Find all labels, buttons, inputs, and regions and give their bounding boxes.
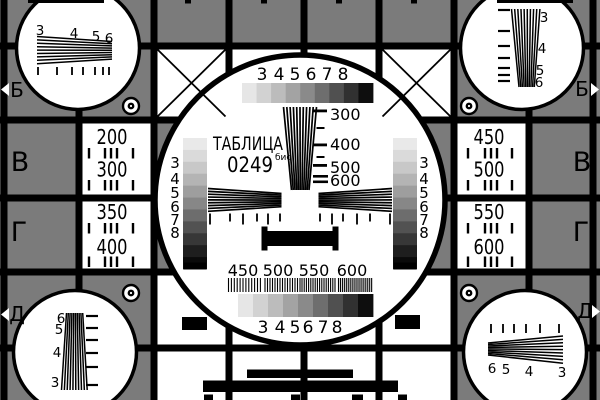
freq-350: 350 xyxy=(97,200,128,224)
tl-circle-ticks-tick xyxy=(56,67,58,75)
tr-circle-ticks-tick xyxy=(498,45,510,47)
bottom-bar-short xyxy=(247,370,353,379)
bl-circle-ticks-tick xyxy=(86,352,98,354)
right-grayscale-strip-step xyxy=(393,150,417,162)
tl-circle-ticks-tick xyxy=(71,67,73,75)
right_numbers-digits-digit: 8 xyxy=(419,224,429,242)
bottom_left-digits-digit: 4 xyxy=(53,345,62,361)
wedge-dash-minor-1 xyxy=(317,127,325,129)
bl-circle-ticks-tick xyxy=(86,327,98,329)
right-panel-ticks-550-tick xyxy=(490,223,492,234)
left-panel-ticks-350-tick xyxy=(110,223,112,234)
wedge-dash-minor-2 xyxy=(317,156,325,158)
wedge-label-400: 400 xyxy=(330,135,361,154)
top_left-digits-digit: 5 xyxy=(92,29,101,45)
right-grayscale-strip-step xyxy=(393,174,417,186)
row-letter-right-b: Б xyxy=(575,77,589,101)
bottom_right-digits-digit: 6 xyxy=(488,361,497,377)
bottom-cut-glyph-1 xyxy=(204,395,213,400)
br-circle-ticks-tick xyxy=(525,324,527,333)
top_numbers-digits-digit: 3 xyxy=(257,65,268,85)
br-circle-ticks-tick xyxy=(490,324,492,333)
right-grayscale-strip-step xyxy=(393,138,417,150)
row-letter-right-d: Д xyxy=(577,299,593,323)
bl-circle-ticks-tick xyxy=(86,384,98,386)
bottom_right-digits-digit: 3 xyxy=(558,365,567,381)
right-grayscale-strip-step xyxy=(393,221,417,233)
left-panel-ticks-300-tick xyxy=(110,180,112,191)
right-panel-ticks-500-tick xyxy=(467,180,469,191)
left-panel-ticks-400-tick xyxy=(88,257,90,268)
ibeam-bar xyxy=(265,231,335,246)
top_left-digits-digit: 4 xyxy=(70,26,79,42)
left-panel-ticks-200-tick xyxy=(88,148,90,159)
left_numbers-digits-digit: 8 xyxy=(170,224,180,242)
ref-mark-upper-right xyxy=(394,263,416,270)
br-circle-ticks-tick xyxy=(558,324,560,333)
bottom-grayscale-strip xyxy=(238,294,373,317)
top-grayscale-strip-step xyxy=(358,83,373,103)
freq-450: 450 xyxy=(474,125,505,149)
center-left-wedge-fan-line xyxy=(208,202,282,203)
left-panel-ticks-350-tick xyxy=(132,223,134,234)
center-ticks-left-tick xyxy=(209,214,211,225)
right-panel-ticks-500-tick xyxy=(496,180,498,191)
center-ticks-right-tick xyxy=(319,214,321,222)
left-grayscale-strip-step xyxy=(183,245,207,257)
tl-circle-ticks-tick xyxy=(102,67,104,75)
ref-mark-upper-left xyxy=(184,263,206,270)
left-panel-ticks-300-tick xyxy=(116,180,118,191)
ibeam-cap-right xyxy=(333,227,339,251)
top-edge-bar-right xyxy=(497,0,573,3)
wedge-dash-400 xyxy=(313,144,327,147)
tl-circle-ticks-tick xyxy=(82,67,84,75)
left-grayscale-strip xyxy=(183,138,207,269)
freq-600: 600 xyxy=(474,235,505,259)
left-grayscale-strip-step xyxy=(183,162,207,174)
bottom-cut-glyph-2 xyxy=(291,395,300,400)
top-cut-glyph-1 xyxy=(185,0,191,4)
left-grayscale-strip-step xyxy=(183,174,207,186)
center-ticks-right-tick xyxy=(389,214,391,225)
tr-circle-ticks-tick xyxy=(498,80,510,82)
right-panel-ticks-600-tick xyxy=(467,257,469,268)
right-panel-ticks-450-tick xyxy=(467,148,469,159)
top_numbers-digits-digit: 7 xyxy=(322,65,333,85)
bl-circle-ticks-tick xyxy=(86,339,98,341)
top-grayscale-strip-step xyxy=(344,83,359,103)
tr-circle-ticks-tick xyxy=(498,57,510,59)
top_numbers-digits-digit: 4 xyxy=(274,65,285,85)
right-panel-ticks-550-tick xyxy=(496,223,498,234)
bottom_numbers-digits-digit: 6 xyxy=(303,318,314,338)
tl-circle-ticks-tick xyxy=(108,67,110,75)
top_numbers-digits-digit: 8 xyxy=(338,65,349,85)
bottom_numbers-digits-digit: 3 xyxy=(258,318,269,338)
bottom_left-digits-digit: 3 xyxy=(51,375,60,391)
right-grayscale-strip-step xyxy=(393,198,417,210)
top_left-digits-digit: 3 xyxy=(36,23,45,39)
bottom_numbers-digits-digit: 4 xyxy=(275,318,286,338)
left-panel-ticks-350-tick xyxy=(116,223,118,234)
left-grayscale-strip-step xyxy=(183,233,207,245)
right-grayscale-strip-step xyxy=(393,209,417,221)
left-panel-ticks-350-tick xyxy=(88,223,90,234)
tl-circle-ticks-tick xyxy=(37,67,39,75)
tr-circle-ticks-tick xyxy=(498,67,510,69)
tr-circle-ticks-tick xyxy=(498,74,510,76)
center-ticks-right-tick xyxy=(342,214,344,222)
bl-circle-ticks-tick xyxy=(86,315,98,317)
top-grayscale-strip-step xyxy=(315,83,330,103)
left-panel-ticks-350-tick xyxy=(104,223,106,234)
row-letter-left-d: Д xyxy=(9,302,25,326)
card-code-suffix: бис xyxy=(275,153,291,163)
left-panel-ticks-300-tick xyxy=(104,180,106,191)
wedge-dash-300 xyxy=(313,110,327,113)
bottom-right-circle xyxy=(464,291,587,400)
bottom_numbers-digits-digit: 7 xyxy=(318,318,329,338)
bottom-grayscale-strip-step xyxy=(283,294,298,317)
row-letter-left-v: В xyxy=(11,147,30,178)
wedge-dash-600b xyxy=(313,181,328,184)
bottom_right-digits-digit: 5 xyxy=(502,362,511,378)
top_right-digits-digit: 4 xyxy=(538,41,547,57)
grating-group-2 xyxy=(265,278,300,292)
bottom_right-digits-digit: 4 xyxy=(525,364,534,380)
left-grayscale-strip-step xyxy=(183,198,207,210)
tl-circle-ticks-tick xyxy=(94,67,96,75)
top-edge-bar-left xyxy=(28,0,104,3)
row-letter-right-v: В xyxy=(573,147,592,178)
top-grayscale-strip-step xyxy=(242,83,257,103)
top-cut-glyph-4 xyxy=(411,0,417,4)
card-code: 0249 xyxy=(227,153,273,177)
bl-wedge-fan-line xyxy=(73,313,74,390)
freq-300: 300 xyxy=(97,158,128,182)
right-panel-ticks-500-tick xyxy=(511,180,513,191)
bottom-bar-long xyxy=(203,381,398,393)
top-left-circle xyxy=(17,0,140,110)
top-grayscale-strip-step xyxy=(300,83,315,103)
bottom-grayscale-strip-step xyxy=(343,294,358,317)
bullseye-icon xyxy=(123,98,139,114)
right-grayscale-strip-step xyxy=(393,245,417,257)
right-panel-ticks-450-tick xyxy=(511,148,513,159)
center-ticks-right-tick xyxy=(356,214,358,225)
bottom-grayscale-strip-step xyxy=(313,294,328,317)
test-card: 3456783456783456783456783456345665436543… xyxy=(0,0,600,400)
top-grayscale-strip-step xyxy=(257,83,272,103)
top-grayscale-strip-step xyxy=(271,83,286,103)
right-grayscale-strip-step xyxy=(393,233,417,245)
bottom-grayscale-strip-step xyxy=(298,294,313,317)
bottom_numbers-digits-digit: 8 xyxy=(332,318,343,338)
center-ticks-left-tick xyxy=(279,214,281,222)
left-panel-ticks-200-tick xyxy=(132,148,134,159)
wedge-label-300: 300 xyxy=(330,105,361,124)
right-panel-ticks-500-tick xyxy=(490,180,492,191)
wedge-dash-600a xyxy=(313,175,328,178)
ref-block-left xyxy=(182,317,207,330)
top-grayscale-strip-step xyxy=(286,83,301,103)
test-card-screen: 3456783456783456783456783456345665436543… xyxy=(0,0,600,400)
grating-label-600: 600 xyxy=(337,261,368,280)
bottom-cut-glyph-3 xyxy=(352,395,363,400)
top_numbers-digits-digit: 5 xyxy=(290,65,301,85)
left-grayscale-strip-step xyxy=(183,138,207,150)
card-title: ТАБЛИЦА xyxy=(212,133,283,155)
top-cut-glyph-3 xyxy=(336,0,342,4)
br-circle-ticks-tick xyxy=(539,324,541,333)
row-letter-right-g: Г xyxy=(573,217,589,248)
bottom-cut-glyph-4 xyxy=(398,395,407,400)
top_numbers-digits-digit: 6 xyxy=(306,65,317,85)
bullseye-icon xyxy=(461,285,477,301)
bl-circle-ticks-tick xyxy=(86,366,98,368)
freq-500: 500 xyxy=(474,158,505,182)
br-circle-ticks-tick xyxy=(513,324,515,333)
bottom-grayscale-strip-step xyxy=(253,294,268,317)
right-panel-ticks-550-tick xyxy=(467,223,469,234)
left-grayscale-strip-step xyxy=(183,150,207,162)
right-grayscale-strip-step xyxy=(393,186,417,198)
center-ticks-left-tick xyxy=(242,214,244,225)
freq-200: 200 xyxy=(97,125,128,149)
grating-label-550: 550 xyxy=(299,261,330,280)
top-cut-glyph-2 xyxy=(261,0,267,4)
top-grayscale-strip-step xyxy=(329,83,344,103)
left-panel-ticks-400-tick xyxy=(132,257,134,268)
freq-550: 550 xyxy=(474,200,505,224)
bottom-grayscale-strip-step xyxy=(268,294,283,317)
tr-circle-ticks-tick xyxy=(498,9,510,11)
right-panel-ticks-550-tick xyxy=(484,223,486,234)
top_right-digits-digit: 3 xyxy=(540,10,549,26)
wedge-dash-500 xyxy=(313,164,327,167)
left-panel-ticks-300-tick xyxy=(88,180,90,191)
wedge-label-600: 600 xyxy=(330,171,361,190)
br-circle-ticks-tick xyxy=(502,324,504,333)
bottom_left-digits-digit: 5 xyxy=(55,322,64,338)
left-grayscale-strip-step xyxy=(183,221,207,233)
bullseye-icon xyxy=(461,98,477,114)
bullseye-icon xyxy=(123,285,139,301)
tl-wedge-fan-line xyxy=(37,53,112,54)
right-grayscale-strip xyxy=(393,138,417,269)
left-grayscale-strip-step xyxy=(183,209,207,221)
grating-label-500: 500 xyxy=(263,261,294,280)
left_numbers-digits: 345678 xyxy=(170,154,180,242)
bottom_numbers-digits-digit: 5 xyxy=(290,318,301,338)
left-panel-ticks-300-tick xyxy=(132,180,134,191)
center-ticks-left-tick xyxy=(256,214,258,222)
bottom-grayscale-strip-step xyxy=(328,294,343,317)
freq-400: 400 xyxy=(97,235,128,259)
tr-circle-ticks-tick xyxy=(498,30,510,32)
grating-label-450: 450 xyxy=(228,261,259,280)
br-wedge-fan-line xyxy=(488,349,563,350)
right-panel-ticks-500-tick xyxy=(484,180,486,191)
bottom-grayscale-strip-step xyxy=(358,294,373,317)
right-grayscale-strip-step xyxy=(393,162,417,174)
center-ticks-right-tick xyxy=(331,214,333,225)
ref-block-right xyxy=(395,315,420,329)
top-grayscale-strip xyxy=(242,83,373,103)
row-letter-left-g: Г xyxy=(11,217,27,248)
right-panel-ticks-550-tick xyxy=(511,223,513,234)
right_numbers-digits: 345678 xyxy=(419,154,429,242)
top_right-digits-digit: 6 xyxy=(535,75,544,91)
center-ticks-right-tick xyxy=(369,214,371,222)
center-ticks-left-tick xyxy=(229,214,231,222)
right-panel-ticks-600-tick xyxy=(511,257,513,268)
ibeam-cap-left xyxy=(262,227,268,251)
center-ticks-left-tick xyxy=(267,214,269,225)
bottom-grayscale-strip-step xyxy=(238,294,253,317)
left-grayscale-strip-step xyxy=(183,186,207,198)
row-letter-left-b: Б xyxy=(10,78,24,102)
top_left-digits-digit: 6 xyxy=(105,31,114,47)
center-right-wedge-fan-line xyxy=(319,202,393,203)
